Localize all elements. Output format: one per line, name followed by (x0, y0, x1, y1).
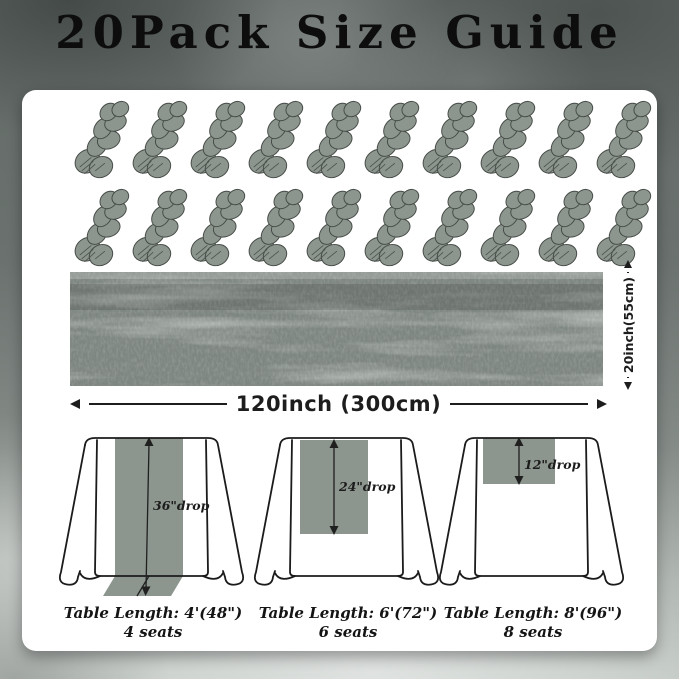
content-card: 20inch(55cm) 120inch (300cm) (22, 90, 657, 651)
dimension-line (627, 377, 629, 378)
cheesecloth-bundle (594, 98, 652, 182)
bundle-grid (72, 98, 610, 274)
cheesecloth-bundle (478, 98, 536, 182)
table-length-label: Table Length: 8'(96") (424, 605, 642, 622)
length-dimension-label: 120inch (300cm) (236, 392, 442, 416)
size-guide-infographic: 20Pack Size Guide (0, 0, 679, 679)
table-seats-label: 4 seats (44, 624, 262, 641)
cheesecloth-bundle (362, 186, 420, 270)
cheesecloth-bundle (420, 98, 478, 182)
cheesecloth-bundle (536, 186, 594, 270)
arrow-right-icon (597, 399, 607, 409)
arrow-up-icon (624, 260, 632, 268)
cheesecloth-bundle (72, 186, 130, 270)
drop-label: 36"drop (153, 498, 209, 513)
cheesecloth-bundle (72, 98, 130, 182)
dimension-line (450, 403, 588, 405)
table-seats-label: 8 seats (424, 624, 642, 641)
page-title: 20Pack Size Guide (0, 6, 679, 59)
width-dimension-label: 20inch(55cm) (621, 277, 636, 373)
runner-fabric-photo (70, 272, 603, 386)
bundle-row (72, 98, 610, 186)
cheesecloth-bundle (594, 186, 652, 270)
arrow-left-icon (70, 399, 80, 409)
width-dimension: 20inch(55cm) (613, 260, 643, 390)
gauze-texture (70, 272, 603, 386)
cheesecloth-bundle (130, 98, 188, 182)
table-figure-4ft: 36"drop Table Length: 4'(48") 4 seats (58, 432, 248, 646)
cheesecloth-bundle (130, 186, 188, 270)
cheesecloth-bundle (362, 98, 420, 182)
cheesecloth-bundle (478, 186, 536, 270)
length-dimension: 120inch (300cm) (70, 391, 607, 417)
cheesecloth-bundle (246, 186, 304, 270)
cheesecloth-bundle (188, 186, 246, 270)
drop-label: 24"drop (339, 479, 395, 494)
cheesecloth-bundle (420, 186, 478, 270)
table-figure-8ft: 12"drop Table Length: 8'(96") 8 seats (438, 432, 628, 646)
bundle-row (72, 186, 610, 274)
table-figure-6ft: 24"drop Table Length: 6'(72") 6 seats (253, 432, 443, 646)
cheesecloth-bundle (246, 98, 304, 182)
table-length-label: Table Length: 4'(48") (44, 605, 262, 622)
cheesecloth-bundle (304, 98, 362, 182)
arrow-down-icon (624, 382, 632, 390)
cheesecloth-bundle (536, 98, 594, 182)
table-diagram (253, 432, 443, 604)
dimension-line (89, 403, 227, 405)
drop-label: 12"drop (524, 457, 580, 472)
table-diagram (58, 432, 248, 604)
dimension-line (627, 272, 629, 273)
cheesecloth-bundle (304, 186, 362, 270)
cheesecloth-bundle (188, 98, 246, 182)
runner-drop-shape (103, 438, 183, 596)
